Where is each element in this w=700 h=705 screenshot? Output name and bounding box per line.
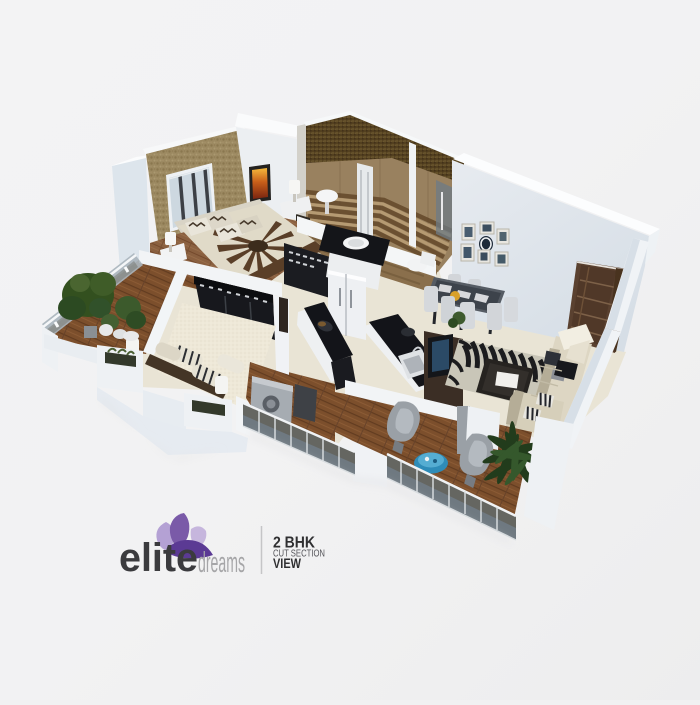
svg-text:elite: elite <box>119 536 198 580</box>
svg-text:VIEW: VIEW <box>273 556 301 571</box>
svg-text:dreams: dreams <box>198 547 245 579</box>
